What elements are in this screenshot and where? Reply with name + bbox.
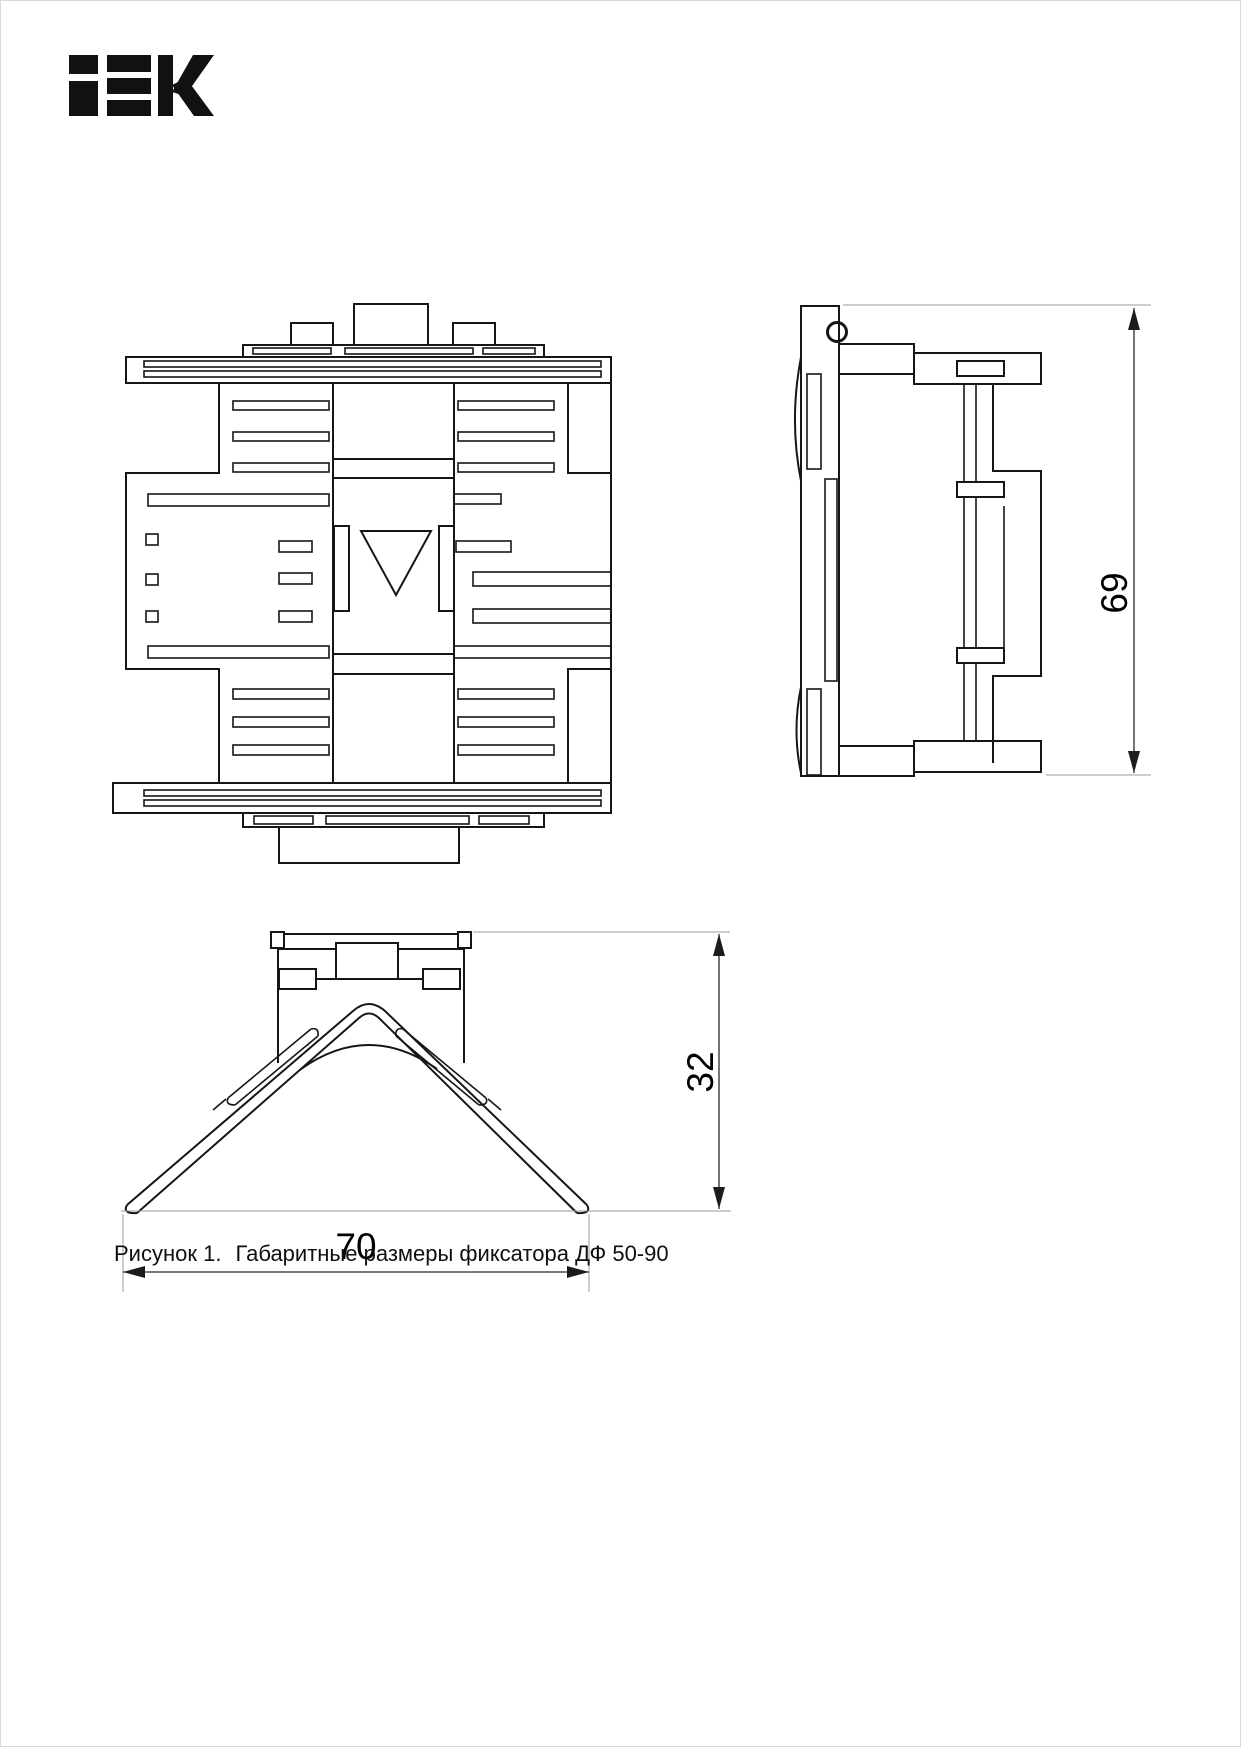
front-view-drawing	[113, 304, 611, 863]
side-view-drawing	[795, 306, 1041, 776]
figure-caption-label: Рисунок 1.	[114, 1241, 221, 1266]
dimension-69-label: 69	[1094, 572, 1135, 613]
profile-view-drawing	[126, 932, 589, 1213]
technical-drawing: 69 32	[1, 1, 1241, 1747]
figure-caption-text: Габаритные размеры фиксатора ДФ 50-90	[235, 1241, 668, 1266]
iek-logo	[69, 55, 214, 116]
hole-icon	[828, 323, 847, 342]
dimension-32-label: 32	[680, 1051, 721, 1092]
datasheet-page: 69 32	[0, 0, 1241, 1747]
figure-caption: Рисунок 1.Габаритные размеры фиксатора Д…	[114, 1241, 669, 1267]
